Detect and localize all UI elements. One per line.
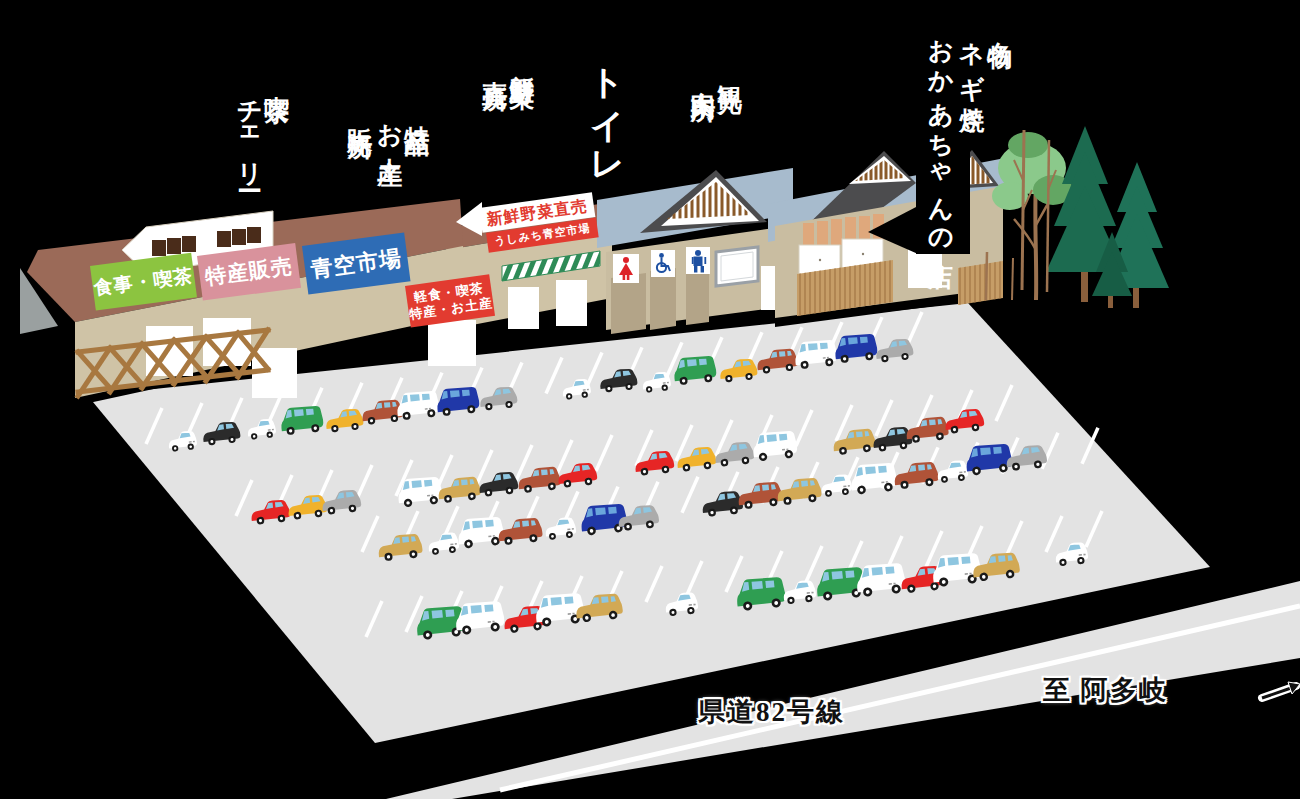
toilet-building — [597, 168, 793, 334]
label-okaachan-col0: 名物 — [986, 22, 1012, 28]
label-shinsen-yasai-col0: 新鮮野菜 — [508, 55, 534, 67]
label-tokusan-omiyage-col2: 販売所 — [346, 108, 372, 117]
label-kankou-annai-col0: 観光 — [716, 65, 742, 71]
label-kissa-cherry-col1: チェリー — [236, 82, 262, 180]
trees — [986, 126, 1169, 308]
label-okaachan-col1: ネギ焼き — [958, 25, 984, 122]
label-toilet-col0: トイレ — [589, 44, 625, 169]
road-direction-label: 至 阿多岐 — [1043, 672, 1168, 708]
road-name-label: 県道82号線 — [698, 694, 845, 730]
roadside-station-map: 喫茶チェリー特産品お土産販売所新鮮野菜直売所トイレ観光案内所名物ネギ焼きおかあち… — [0, 0, 1300, 799]
label-kankou-annai-col1: 案内所 — [689, 71, 715, 80]
label-shinsen-yasai-col1: 直売所 — [481, 60, 507, 69]
label-okaachan-col2: おかあちゃんの店 — [927, 22, 953, 246]
label-tokusan-omiyage-col0: 特産品 — [403, 106, 429, 115]
label-kissa-cherry-col0: 喫茶 — [263, 75, 289, 81]
direction-arrow-icon — [1262, 682, 1300, 698]
label-tokusan-omiyage-col1: お土産 — [376, 106, 402, 144]
notice-board — [716, 247, 758, 286]
